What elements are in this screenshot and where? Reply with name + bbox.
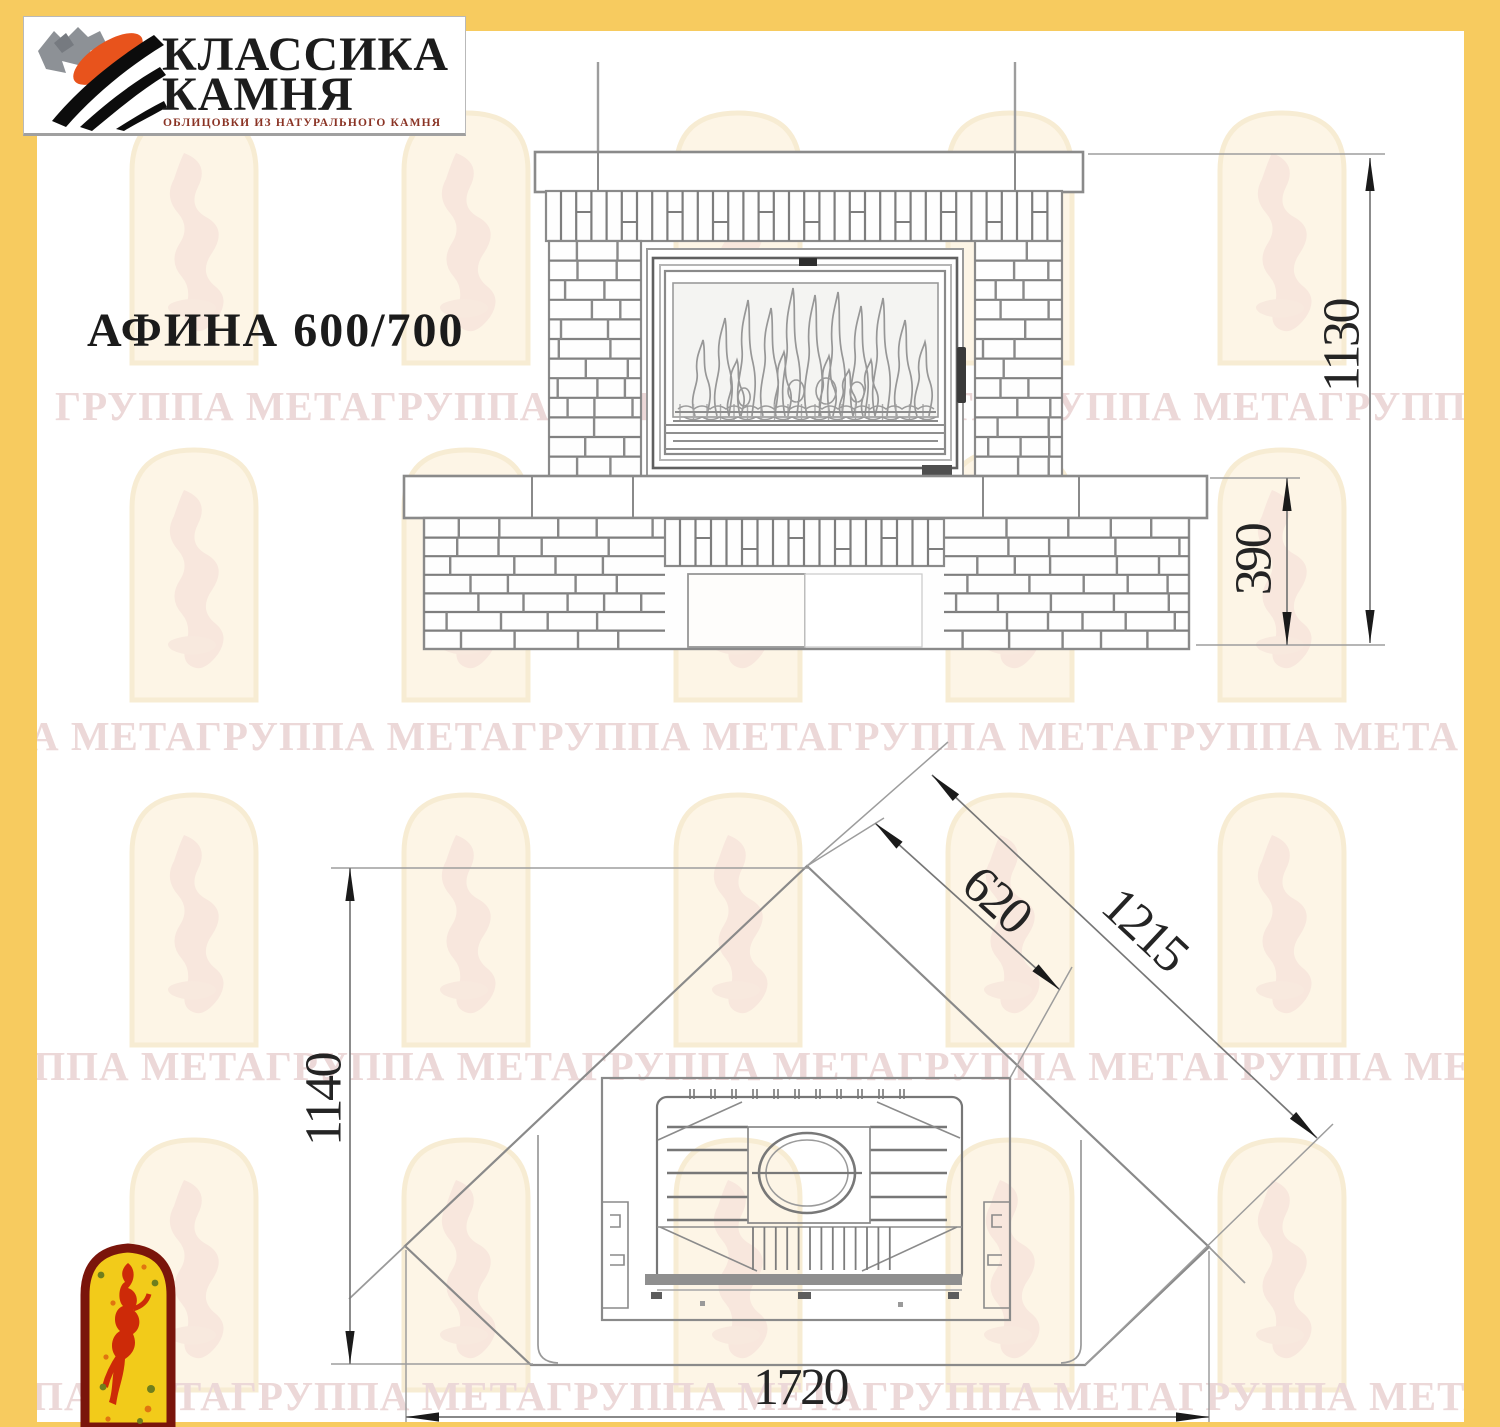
svg-text:390: 390 <box>1226 523 1283 595</box>
svg-text:1140: 1140 <box>296 1052 353 1146</box>
svg-text:620: 620 <box>951 855 1043 946</box>
svg-text:1215: 1215 <box>1091 877 1199 983</box>
svg-text:1720: 1720 <box>753 1359 849 1416</box>
svg-text:1130: 1130 <box>1314 298 1371 392</box>
